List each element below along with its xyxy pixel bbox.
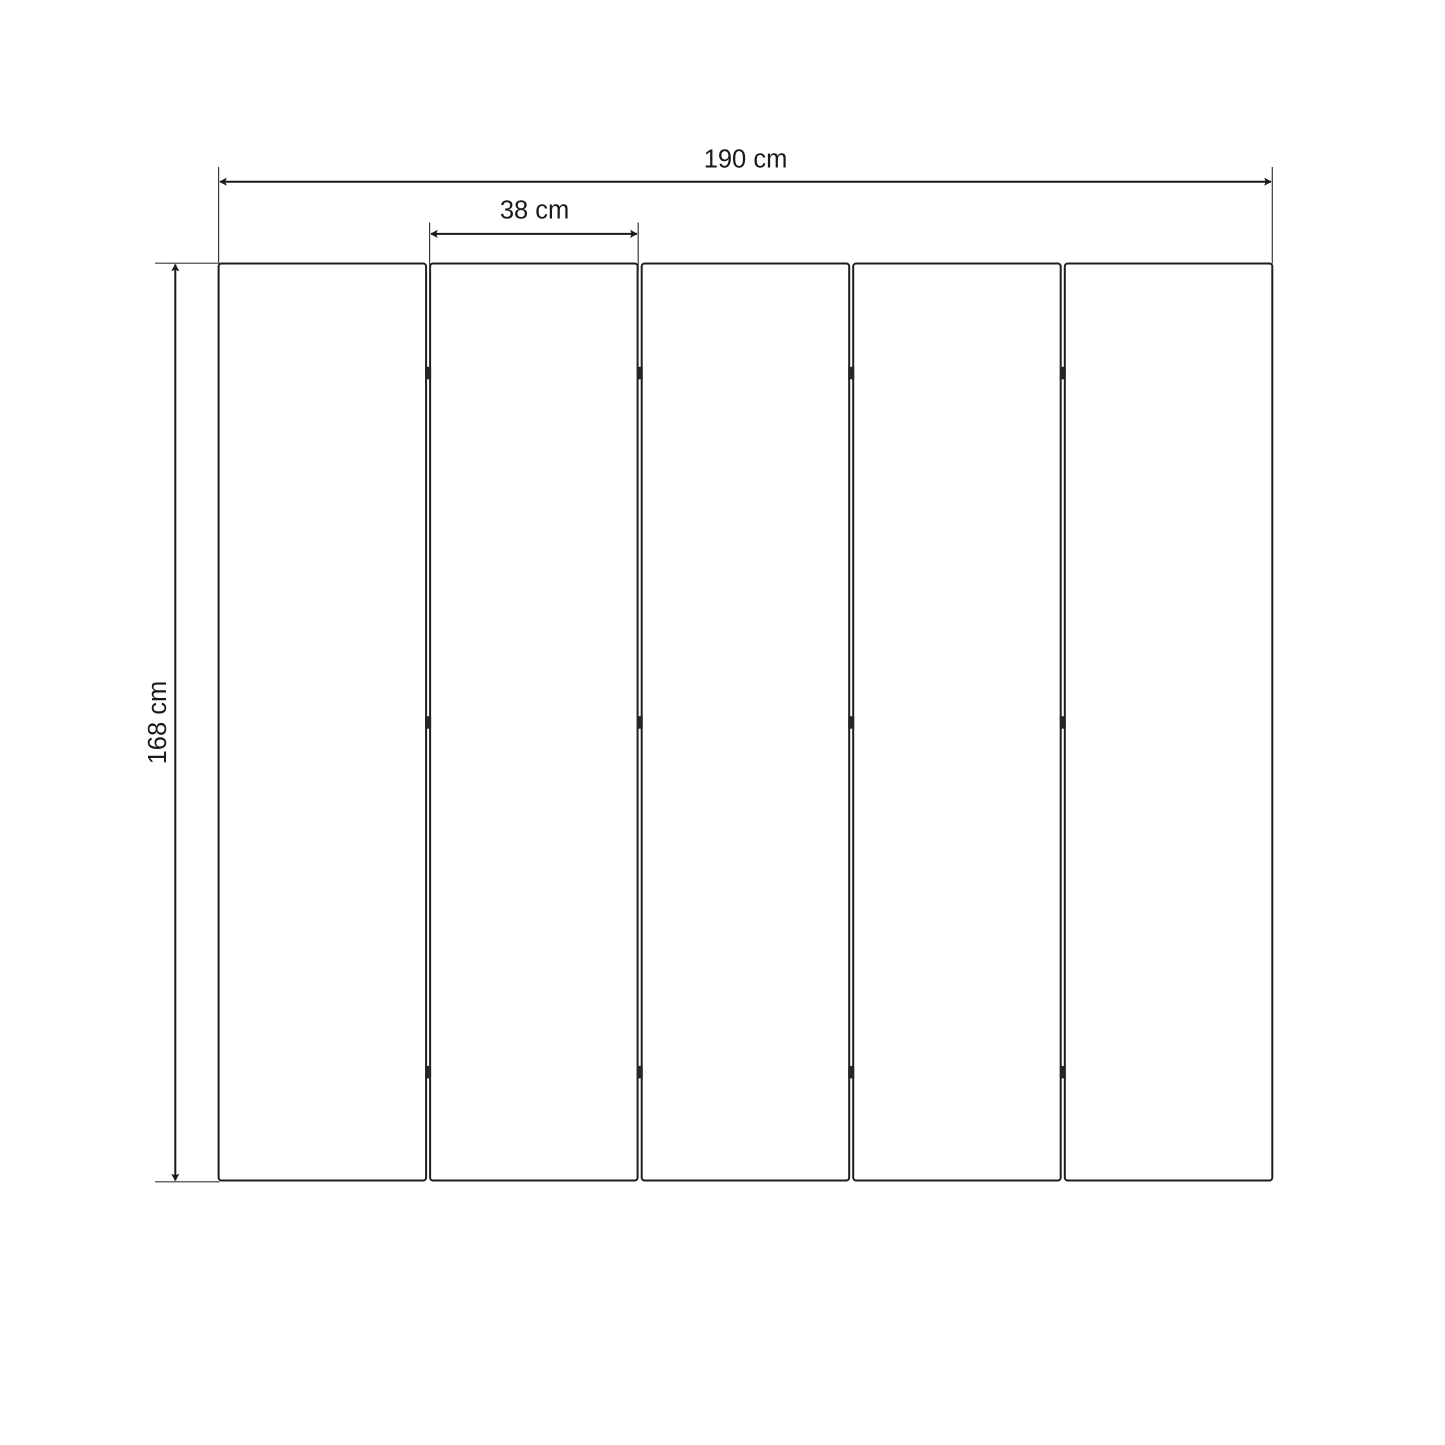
svg-text:190 cm: 190 cm [704,146,788,174]
svg-text:38 cm: 38 cm [500,197,569,225]
svg-text:168 cm: 168 cm [144,681,172,765]
